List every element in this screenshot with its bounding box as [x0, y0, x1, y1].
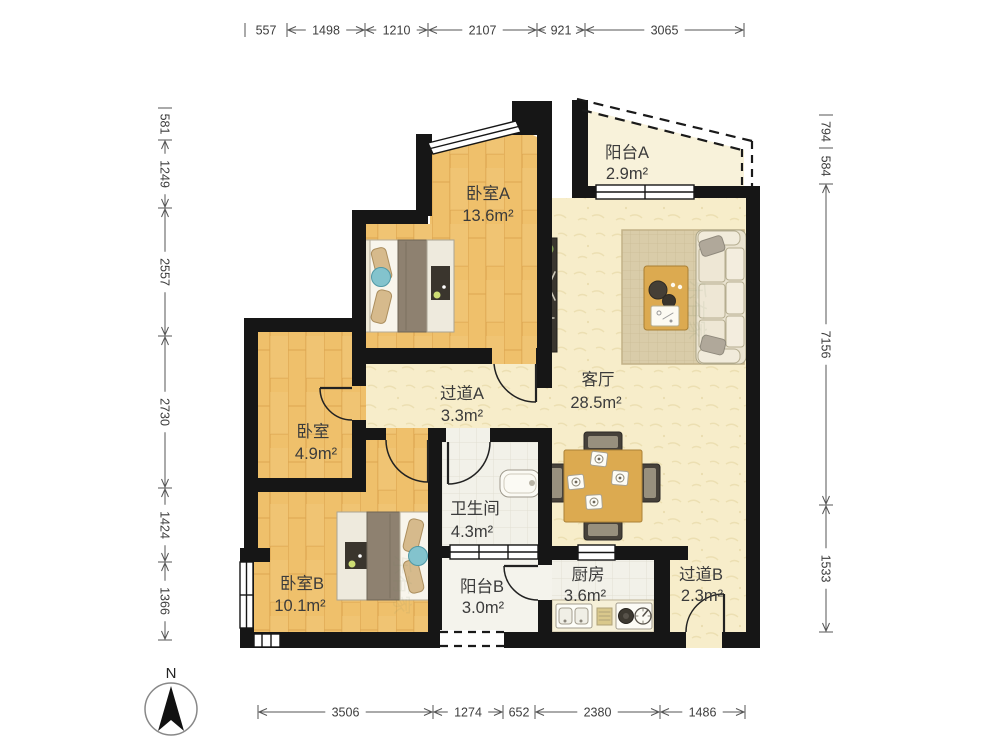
room-area-bathroom: 4.3m² — [451, 523, 494, 541]
doorway-entry — [686, 632, 724, 648]
room-name-bedroom-a: 卧室A — [466, 184, 510, 203]
room-name-bathroom: 卫生间 — [450, 499, 500, 518]
dimension-label: 584 — [819, 156, 833, 177]
room-area-bedroom: 4.9m² — [295, 445, 338, 463]
dimension-label: 1533 — [819, 555, 833, 583]
dimension-label: 652 — [509, 706, 530, 720]
room-area-hallway-b: 2.3m² — [681, 587, 724, 605]
dimension-label: 3065 — [651, 24, 679, 38]
room-name-balcony-a: 阳台A — [605, 143, 649, 162]
window-bedroom-b-bottom — [254, 634, 280, 647]
watermark-text: 乐有家 — [390, 555, 413, 615]
room-name-hallway-a: 过道A — [440, 384, 484, 403]
dimension-label: 1210 — [383, 24, 411, 38]
dimension-label: 581 — [158, 114, 172, 135]
room-name-kitchen: 厨房 — [572, 565, 605, 584]
dimension-label: 1498 — [312, 24, 340, 38]
balcony-b-open-edge — [440, 630, 504, 648]
compass-north-label: N — [166, 665, 177, 682]
room-area-kitchen: 3.6m² — [564, 587, 607, 605]
dimension-label: 2730 — [158, 398, 172, 426]
floor-plan-page: 乐有家 乐有家 卧室A 13.6m² 阳台A 2.9m² 客厅 28.5m² 过… — [0, 0, 1000, 750]
bathtub — [500, 470, 540, 497]
bed-a — [362, 240, 454, 332]
doorway-balcony-b — [538, 565, 552, 600]
dimension-label: 1249 — [158, 160, 172, 188]
floor-plan: 乐有家 乐有家 卧室A 13.6m² 阳台A 2.9m² 客厅 28.5m² 过… — [0, 0, 1000, 750]
coffee-table — [644, 266, 688, 330]
watermark-text: 乐有家 — [685, 280, 708, 340]
dimension-label: 3506 — [332, 706, 360, 720]
dimension-label: 7156 — [819, 331, 833, 359]
dimension-label: 1486 — [689, 706, 717, 720]
room-name-bedroom-b: 卧室B — [280, 574, 324, 593]
dimension-label: 1424 — [158, 511, 172, 539]
room-area-bedroom-a: 13.6m² — [462, 207, 514, 225]
north-arrow-icon — [158, 686, 184, 731]
room-name-balcony-b: 阳台B — [460, 577, 504, 596]
dimension-label: 1274 — [454, 706, 482, 720]
bed-b — [337, 512, 437, 600]
doorway-bedroom — [352, 386, 366, 420]
room-name-hallway-b: 过道B — [679, 565, 723, 584]
room-name-living-room: 客厅 — [582, 370, 615, 389]
window-balcony-a — [596, 185, 694, 199]
room-area-balcony-a: 2.9m² — [606, 165, 649, 183]
room-area-balcony-b: 3.0m² — [462, 599, 505, 617]
room-area-living-room: 28.5m² — [570, 394, 622, 412]
room-area-hallway-a: 3.3m² — [441, 407, 484, 425]
window-bedroom-b-left — [240, 562, 253, 628]
room-name-bedroom: 卧室 — [297, 422, 330, 441]
compass: N — [145, 665, 197, 735]
dimension-label: 794 — [819, 121, 833, 142]
dimension-label: 1366 — [158, 587, 172, 615]
doorway-bedroom-a — [492, 348, 536, 364]
doorway-bathroom — [446, 428, 490, 442]
dimension-label: 921 — [551, 24, 572, 38]
dimension-label: 2557 — [158, 258, 172, 286]
window-kitchen — [578, 545, 615, 560]
room-area-bedroom-b: 10.1m² — [274, 597, 326, 615]
dimension-label: 557 — [256, 24, 277, 38]
window-bathroom-balcony-b — [450, 545, 538, 559]
dimension-label: 2107 — [469, 24, 497, 38]
dimension-label: 2380 — [584, 706, 612, 720]
